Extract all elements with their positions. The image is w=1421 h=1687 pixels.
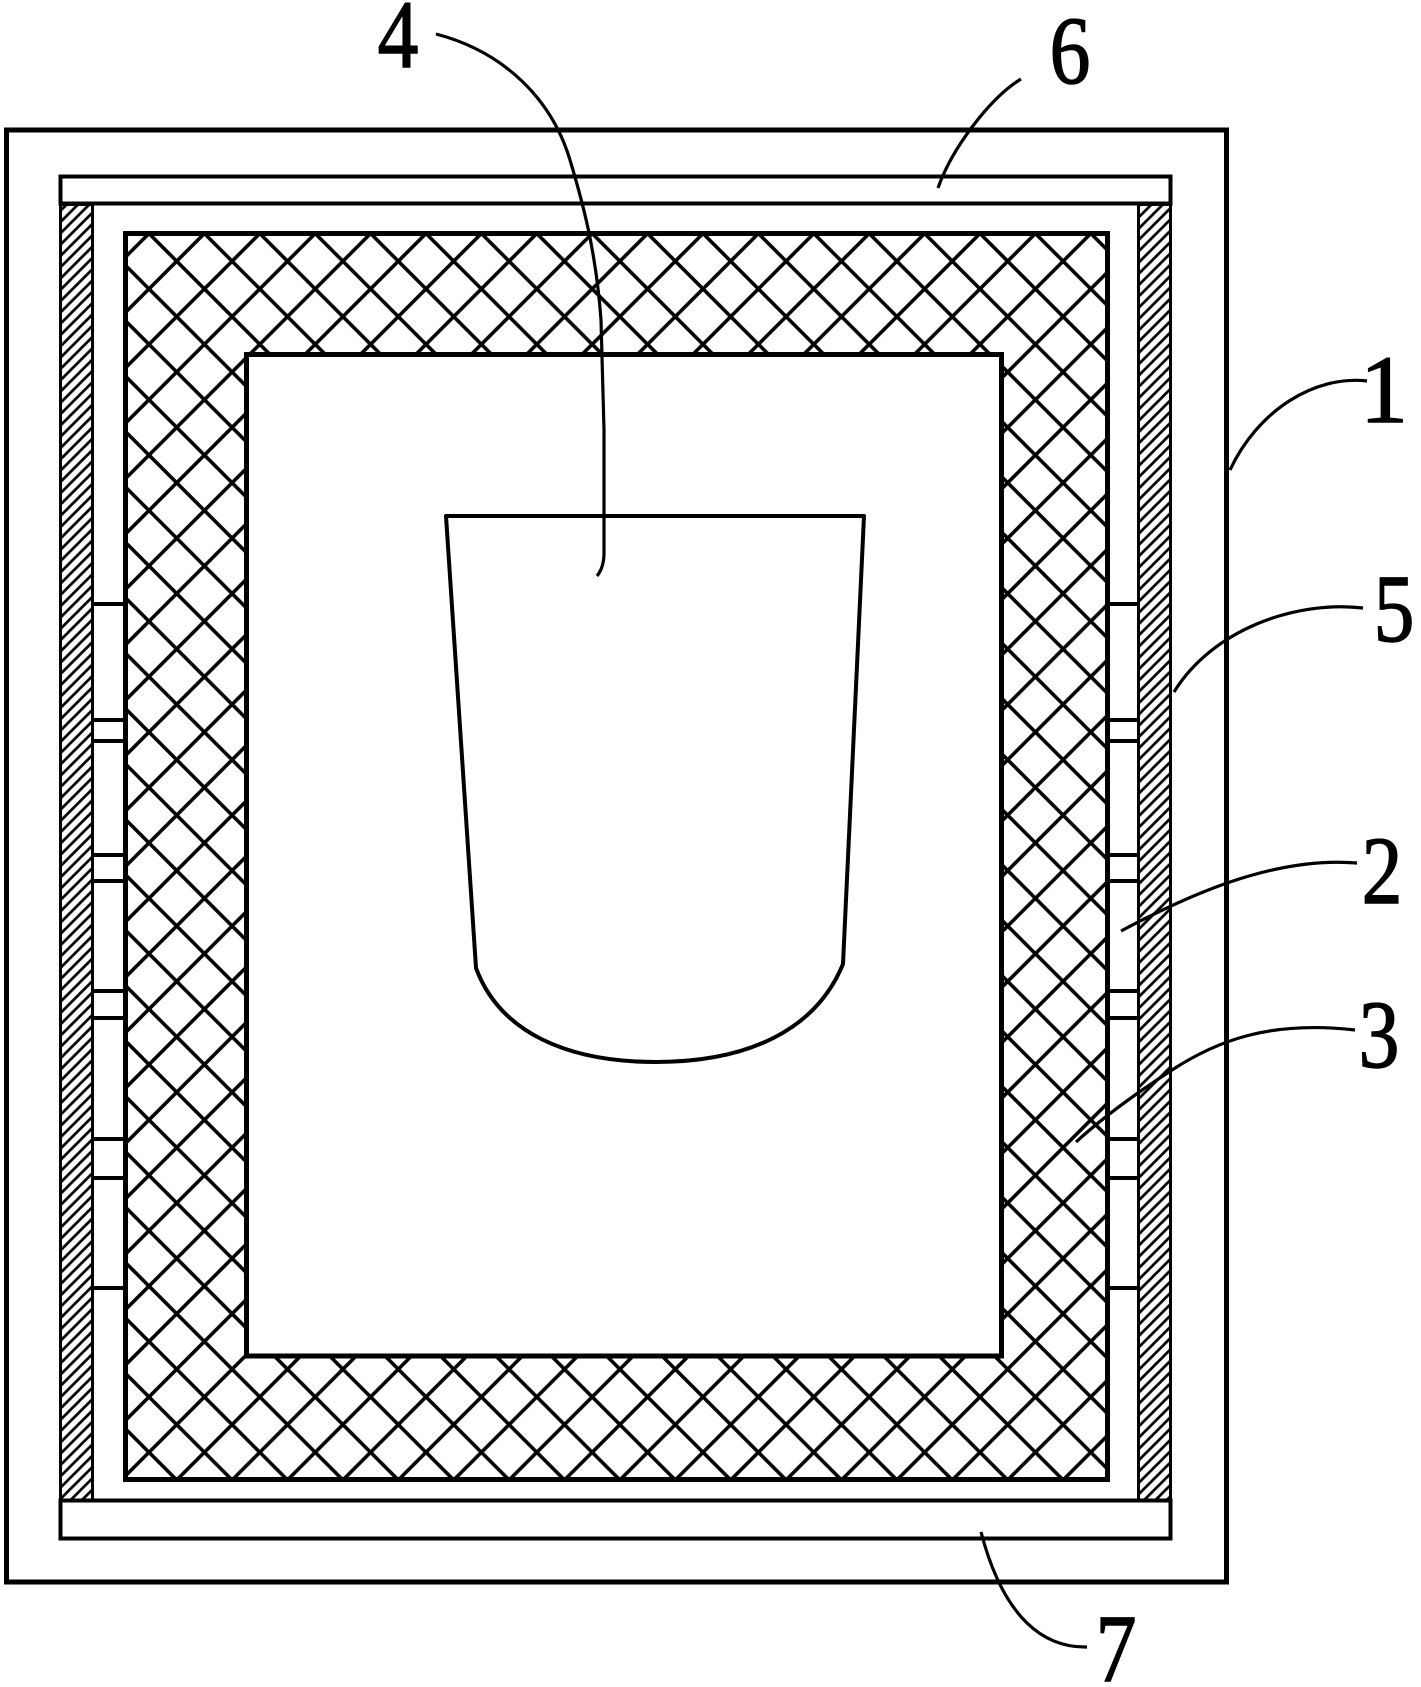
- svg-text:3: 3: [1359, 983, 1400, 1089]
- svg-text:6: 6: [1050, 0, 1091, 105]
- svg-text:2: 2: [1362, 819, 1403, 925]
- svg-text:7: 7: [1096, 1597, 1137, 1687]
- svg-text:4: 4: [378, 0, 419, 89]
- svg-text:5: 5: [1374, 557, 1415, 663]
- svg-text:1: 1: [1360, 336, 1408, 443]
